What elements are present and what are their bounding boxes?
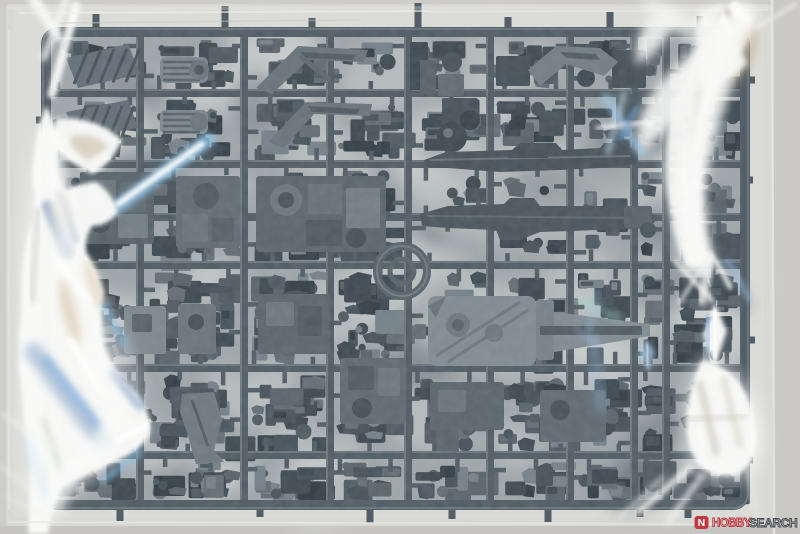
svg-text:HOBBY: HOBBY (712, 518, 752, 530)
svg-text:SEARCH: SEARCH (749, 516, 797, 530)
svg-text:N: N (698, 517, 706, 529)
